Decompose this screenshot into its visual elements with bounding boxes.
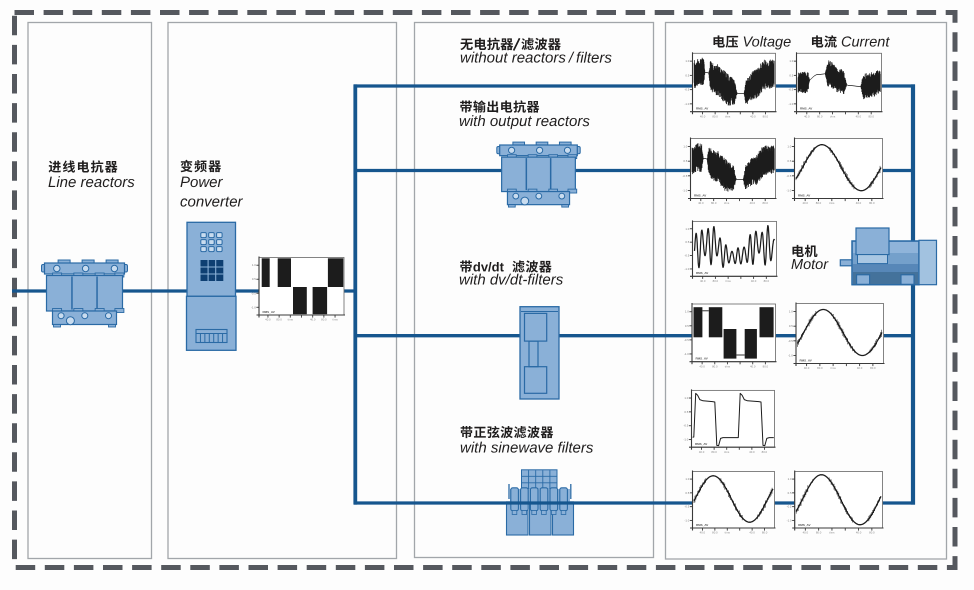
svg-text:40.0: 40.0 [699, 364, 705, 368]
svg-text:40.0: 40.0 [700, 114, 706, 118]
svg-text:0.5: 0.5 [788, 491, 792, 495]
svg-text:RMS_AV: RMS_AV [263, 310, 275, 314]
svg-text:40.0: 40.0 [310, 318, 316, 322]
svg-text:1.0: 1.0 [685, 310, 689, 314]
svg-text:-1.0: -1.0 [682, 189, 687, 193]
svg-text:1.0: 1.0 [788, 477, 792, 481]
svg-text:-1.0: -1.0 [788, 354, 793, 358]
svg-text:80.0: 80.0 [869, 531, 875, 535]
svg-text:40.0: 40.0 [700, 279, 706, 283]
svg-text:Motor: Motor [791, 257, 829, 273]
svg-text:80.0: 80.0 [869, 201, 875, 205]
svg-text:40.0: 40.0 [698, 201, 704, 205]
svg-text:RMS_AV: RMS_AV [696, 271, 708, 275]
svg-text:40.0: 40.0 [856, 531, 862, 535]
svg-text:t/ms: t/ms [725, 114, 731, 118]
svg-text:80.0: 80.0 [276, 318, 282, 322]
svg-text:t/ms: t/ms [830, 366, 836, 370]
svg-text:0.5: 0.5 [684, 410, 688, 414]
svg-text:t/ms: t/ms [724, 450, 730, 454]
svg-text:40.0: 40.0 [856, 114, 862, 118]
svg-text:-1.0: -1.0 [786, 189, 791, 193]
svg-text:40.0: 40.0 [857, 366, 863, 370]
svg-text:80.0: 80.0 [816, 531, 822, 535]
svg-text:1.0: 1.0 [685, 59, 689, 63]
svg-text:80.0: 80.0 [712, 364, 718, 368]
svg-text:-0.5: -0.5 [251, 291, 256, 295]
svg-text:1.0: 1.0 [787, 145, 791, 149]
svg-text:80.0: 80.0 [817, 114, 823, 118]
svg-text:t/ms: t/ms [725, 531, 731, 535]
svg-text:40.0: 40.0 [856, 201, 862, 205]
svg-text:converter: converter [180, 194, 244, 211]
svg-text:1.0: 1.0 [684, 396, 688, 400]
svg-text:40.0: 40.0 [750, 114, 756, 118]
svg-text:-0.5: -0.5 [684, 254, 689, 258]
svg-text:t/ms: t/ms [829, 201, 835, 205]
svg-text:t/ms: t/ms [332, 318, 338, 322]
svg-text:RMS_AV: RMS_AV [696, 523, 708, 527]
svg-text:80.0: 80.0 [762, 531, 768, 535]
svg-text:with dv/dt-filters: with dv/dt-filters [459, 272, 564, 289]
svg-text:80.0: 80.0 [764, 279, 770, 283]
svg-text:40.0: 40.0 [803, 531, 809, 535]
svg-text:-0.5: -0.5 [684, 338, 689, 342]
svg-text:RMS_AV: RMS_AV [694, 193, 706, 197]
svg-text:40.0: 40.0 [265, 318, 271, 322]
svg-text:-1.0: -1.0 [788, 102, 793, 106]
svg-text:1.0: 1.0 [685, 477, 689, 481]
svg-text:-1.0: -1.0 [683, 438, 688, 442]
svg-text:t/ms: t/ms [725, 279, 731, 283]
svg-text:-1.0: -1.0 [684, 102, 689, 106]
svg-text:80.0: 80.0 [870, 366, 876, 370]
svg-text:Line reactors: Line reactors [48, 174, 135, 191]
svg-text:0.5: 0.5 [685, 73, 689, 77]
svg-text:80.0: 80.0 [711, 450, 717, 454]
svg-text:0.5: 0.5 [252, 277, 256, 281]
svg-text:-0.5: -0.5 [683, 424, 688, 428]
svg-text:80.0: 80.0 [321, 318, 327, 322]
svg-text:with sinewave filters: with sinewave filters [460, 440, 594, 457]
svg-text:RMS_AV: RMS_AV [695, 442, 707, 446]
svg-text:40.0: 40.0 [700, 531, 706, 535]
svg-text:RMS_AV: RMS_AV [798, 193, 810, 197]
svg-text:RMS_AV: RMS_AV [696, 357, 708, 361]
svg-text:0.5: 0.5 [685, 240, 689, 244]
svg-text:Current: Current [841, 35, 890, 51]
svg-text:80.0: 80.0 [816, 201, 822, 205]
svg-text:40.0: 40.0 [804, 114, 810, 118]
svg-text:80.0: 80.0 [817, 366, 823, 370]
svg-text:-0.5: -0.5 [788, 339, 793, 343]
svg-text:-0.5: -0.5 [787, 505, 792, 509]
svg-text:80.0: 80.0 [762, 201, 768, 205]
svg-text:RMS_AV: RMS_AV [800, 107, 812, 111]
svg-text:1.0: 1.0 [789, 310, 793, 314]
svg-text:40.0: 40.0 [749, 450, 755, 454]
svg-text:0.5: 0.5 [789, 73, 793, 77]
svg-text:40.0: 40.0 [802, 201, 808, 205]
svg-text:40.0: 40.0 [749, 531, 755, 535]
svg-text:with output reactors: with output reactors [459, 113, 590, 130]
svg-text:1.0: 1.0 [789, 59, 793, 63]
svg-text:-1.0: -1.0 [684, 518, 689, 522]
svg-text:-0.5: -0.5 [788, 88, 793, 92]
svg-text:0.5: 0.5 [789, 324, 793, 328]
svg-text:80.0: 80.0 [711, 201, 717, 205]
svg-text:-1.0: -1.0 [787, 518, 792, 522]
svg-text:80.0: 80.0 [713, 279, 719, 283]
svg-text:0.5: 0.5 [685, 324, 689, 328]
svg-text:-0.5: -0.5 [682, 174, 687, 178]
svg-text:t/ms: t/ms [725, 364, 731, 368]
svg-text:80.0: 80.0 [712, 531, 718, 535]
svg-text:80.0: 80.0 [763, 364, 769, 368]
svg-text:40.0: 40.0 [750, 364, 756, 368]
svg-text:t/ms: t/ms [829, 531, 835, 535]
svg-text:80.0: 80.0 [763, 114, 769, 118]
svg-text:RMS_AV: RMS_AV [800, 358, 812, 362]
svg-text:-1.0: -1.0 [684, 267, 689, 271]
svg-text:80.0: 80.0 [762, 450, 768, 454]
svg-text:0.5: 0.5 [685, 491, 689, 495]
svg-text:t/ms: t/ms [830, 114, 836, 118]
svg-text:t/ms: t/ms [724, 201, 730, 205]
svg-text:-1.0: -1.0 [251, 305, 256, 309]
svg-text:0.5: 0.5 [787, 159, 791, 163]
svg-text:40.0: 40.0 [751, 279, 757, 283]
svg-text:80.0: 80.0 [712, 114, 718, 118]
svg-text:RMS_AV: RMS_AV [798, 523, 810, 527]
svg-text:Voltage: Voltage [742, 35, 791, 51]
svg-text:1.0: 1.0 [252, 263, 256, 267]
svg-text:without reactors / filters: without reactors / filters [460, 50, 612, 67]
svg-text:0.5: 0.5 [683, 159, 687, 163]
svg-text:-1.0: -1.0 [684, 352, 689, 356]
svg-text:Power: Power [180, 174, 224, 191]
svg-text:1.0: 1.0 [683, 145, 687, 149]
svg-text:-0.5: -0.5 [684, 88, 689, 92]
svg-text:t/ms: t/ms [288, 318, 294, 322]
svg-text:40.0: 40.0 [750, 201, 756, 205]
svg-text:40.0: 40.0 [804, 366, 810, 370]
svg-text:RMS_AV: RMS_AV [696, 107, 708, 111]
svg-text:-0.5: -0.5 [684, 505, 689, 509]
svg-text:40.0: 40.0 [699, 450, 705, 454]
svg-text:80.0: 80.0 [868, 114, 874, 118]
svg-text:-0.5: -0.5 [786, 174, 791, 178]
svg-text:1.0: 1.0 [685, 227, 689, 231]
